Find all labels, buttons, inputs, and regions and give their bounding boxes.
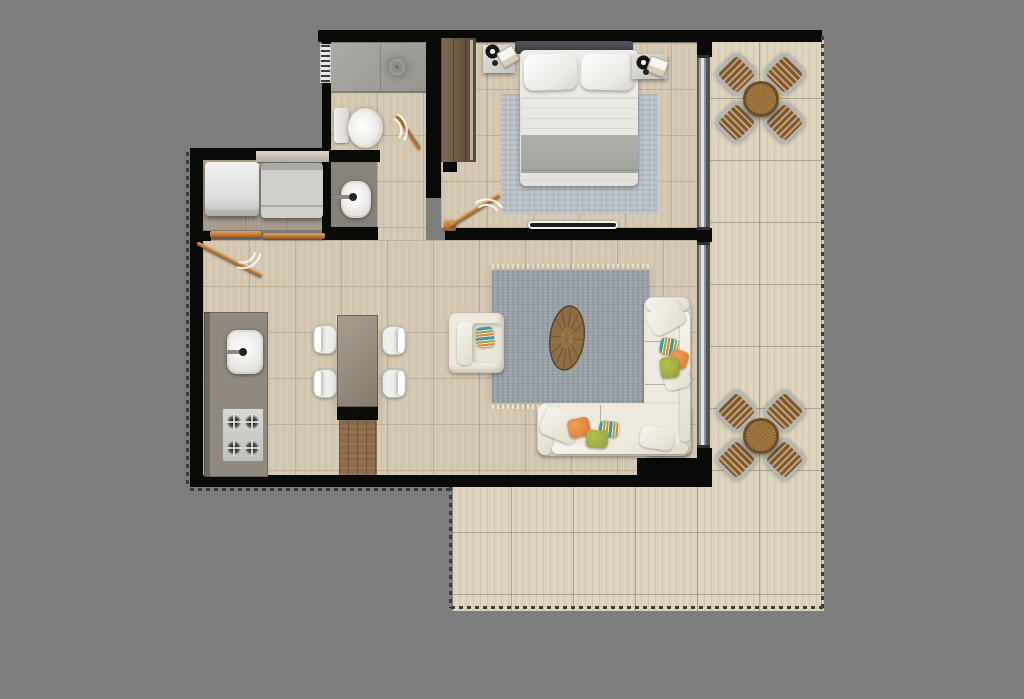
dining-chair [313, 325, 337, 354]
wall-vanity-bottom [322, 227, 378, 240]
throw-pillow-olive [659, 356, 680, 379]
bed-pillow-right [580, 53, 634, 91]
throw-pillow-olive [585, 429, 608, 448]
wall-laundry-bottom-stub [190, 231, 211, 241]
nightstand-phone [643, 69, 649, 75]
boundary-dashed-terrace-left [449, 487, 452, 608]
bathroom-window [320, 44, 331, 83]
kitchen-faucet-head [239, 348, 247, 356]
dryer [261, 163, 323, 218]
shower-edge-line [331, 91, 426, 93]
boundary-dashed-left [186, 152, 189, 487]
living-rug-fringe-top [492, 264, 649, 269]
wall-bottom-right-chunk [637, 458, 712, 487]
floor-plan-canvas [0, 0, 1024, 699]
terrace-table-bottom [743, 418, 779, 454]
armchair-back [457, 321, 473, 365]
tv-panel [528, 221, 618, 229]
wall-right-mid-stub [697, 230, 712, 242]
wall-bottom [190, 475, 712, 487]
bed-foot-sheet [521, 171, 638, 186]
toilet-tank [334, 108, 349, 143]
laundry-shelf [256, 151, 329, 162]
wall-left [190, 148, 203, 486]
wall-hall-bedroom [426, 30, 441, 198]
boundary-dashed-bottom [451, 606, 825, 609]
stove-burner [244, 440, 260, 456]
terrace-table-top [743, 81, 779, 117]
boundary-dashed-under-wall [190, 488, 452, 491]
entry-niche-wood-floor [339, 419, 377, 477]
wall-entry-niche-stub [337, 407, 378, 420]
washer [205, 162, 259, 216]
living-sliding-door [697, 242, 710, 448]
dining-chair [382, 369, 406, 398]
armchair-accent-pillow [475, 326, 495, 348]
shower-drain [389, 59, 405, 75]
dining-chair [313, 369, 337, 398]
wall-bath-vanity-divider [322, 150, 380, 162]
laundry-sliding-panel-b [263, 233, 325, 239]
nightstand-phone [492, 60, 498, 66]
stove-burner [226, 440, 242, 456]
wardrobe-track [470, 40, 473, 160]
shower-floor [331, 43, 426, 93]
stove-burner [226, 414, 242, 430]
shower-tile-seam [380, 43, 381, 93]
toilet-bowl [348, 108, 383, 148]
laundry-sliding-panel-a [210, 231, 261, 238]
bed-pillow-left [523, 53, 577, 91]
bed-duvet [521, 135, 638, 173]
dining-table [337, 315, 378, 407]
bedroom-sliding-door [697, 55, 710, 230]
washbasin-faucet-head [349, 193, 357, 201]
stove-burner [244, 414, 260, 430]
boundary-dashed-right [821, 36, 824, 609]
bed-sheet-fold [521, 99, 638, 137]
dining-chair [382, 326, 406, 355]
wall-bedroom-bottom [445, 228, 712, 240]
wall-right-top-stub [697, 30, 712, 57]
coffee-table [543, 301, 591, 375]
